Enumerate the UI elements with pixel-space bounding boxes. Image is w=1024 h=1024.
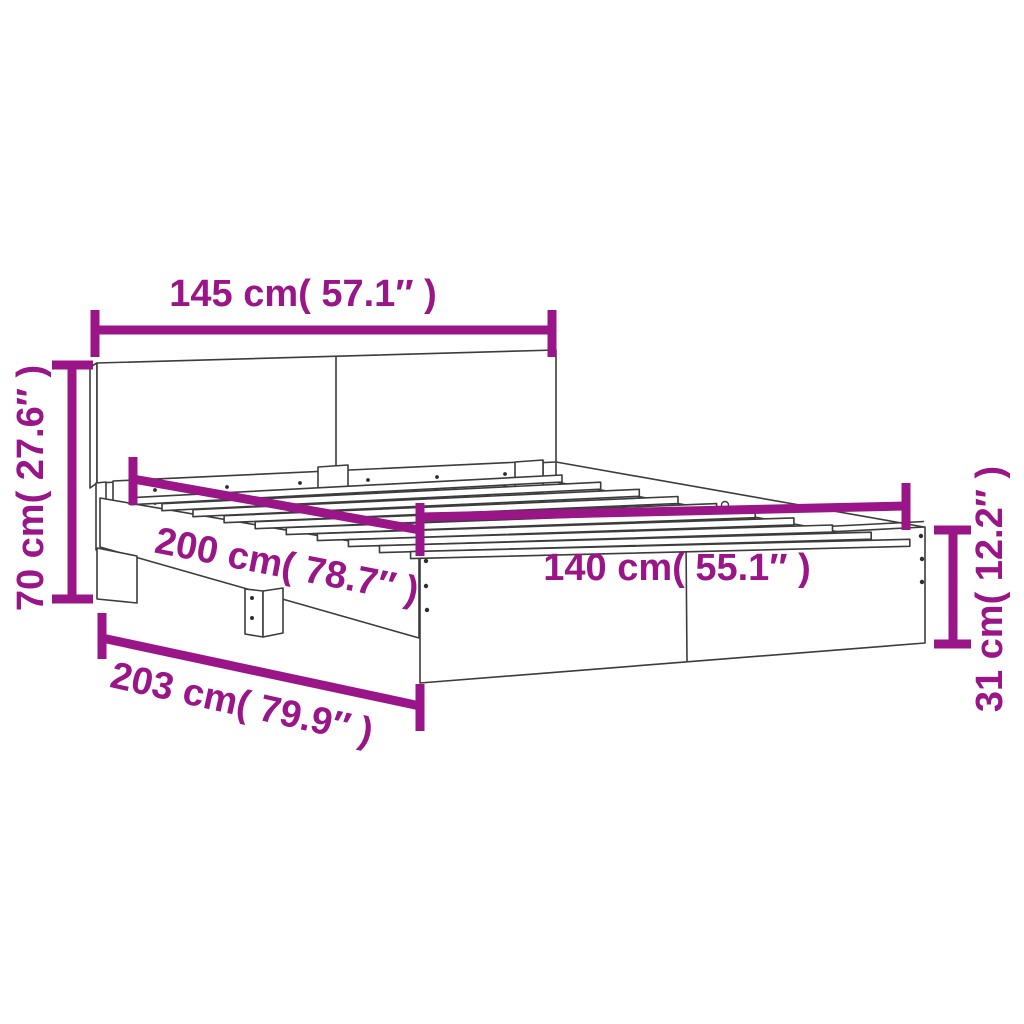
headboard-side-edge bbox=[90, 363, 97, 488]
headboard-width-label: 145 cm( 57.1″ ) bbox=[169, 273, 436, 315]
bed-frame-dimension-diagram: 145 cm( 57.1″ ) 70 cm( 27.6″ ) 200 cm( 7… bbox=[0, 0, 1024, 1024]
diagram-canvas: 145 cm( 57.1″ ) 70 cm( 27.6″ ) 200 cm( 7… bbox=[0, 0, 1024, 1024]
dimension-side-height: 31 cm( 12.2″ ) bbox=[934, 466, 1011, 712]
headboard-left-leg bbox=[97, 548, 137, 603]
center-support-leg bbox=[245, 588, 283, 637]
frame-width-label: 140 cm( 55.1″ ) bbox=[543, 547, 810, 589]
headboard-height-label: 70 cm( 27.6″ ) bbox=[10, 365, 52, 611]
dimension-headboard-height: 70 cm( 27.6″ ) bbox=[10, 365, 93, 611]
side-height-label: 31 cm( 12.2″ ) bbox=[969, 466, 1011, 712]
dimension-headboard-width: 145 cm( 57.1″ ) bbox=[95, 273, 552, 357]
